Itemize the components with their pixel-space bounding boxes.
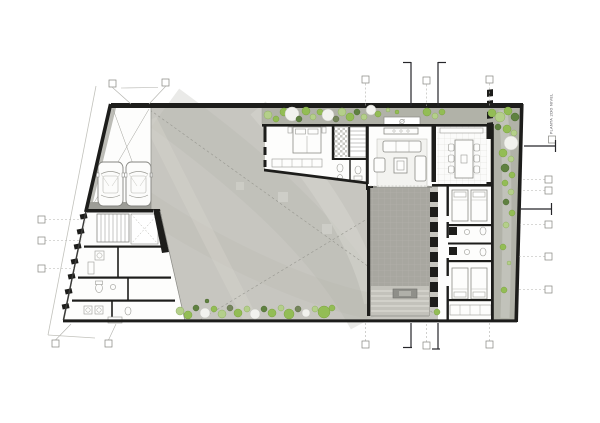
tree-icon bbox=[211, 306, 217, 312]
tree-icon bbox=[386, 108, 390, 112]
tree-icon bbox=[250, 309, 260, 319]
stair-icon bbox=[97, 214, 129, 242]
grid-marker bbox=[362, 341, 369, 348]
bed-icon bbox=[471, 268, 487, 299]
tree-icon bbox=[193, 305, 199, 311]
tree-icon bbox=[354, 109, 360, 115]
tree-icon bbox=[284, 309, 294, 319]
tree-icon bbox=[227, 305, 233, 311]
tree-icon bbox=[273, 116, 279, 122]
tree-icon bbox=[312, 306, 318, 312]
tree-icon bbox=[278, 305, 284, 311]
tree-icon bbox=[295, 306, 301, 312]
grid-marker bbox=[38, 265, 45, 272]
stair-icon bbox=[350, 127, 366, 157]
bathroom-floor bbox=[334, 127, 348, 157]
tree-icon bbox=[200, 308, 210, 318]
garage bbox=[86, 107, 153, 210]
grid-marker bbox=[423, 342, 430, 349]
grid-marker bbox=[52, 340, 59, 347]
tree-icon bbox=[434, 309, 440, 315]
tree-icon bbox=[329, 305, 335, 311]
grid-marker bbox=[362, 76, 369, 83]
tree-icon bbox=[310, 114, 316, 120]
grid-marker bbox=[423, 77, 430, 84]
car-icon bbox=[125, 162, 153, 206]
tree-icon bbox=[346, 113, 354, 121]
sofa-icon bbox=[415, 156, 426, 181]
tree-icon bbox=[264, 111, 272, 119]
tree-icon bbox=[508, 189, 514, 195]
sofa-icon bbox=[383, 141, 421, 152]
tree-icon bbox=[495, 112, 505, 122]
grid-marker bbox=[38, 216, 45, 223]
tree-icon bbox=[423, 108, 431, 116]
tree-icon bbox=[503, 199, 509, 205]
tree-icon bbox=[499, 149, 507, 157]
tree-icon bbox=[507, 261, 511, 265]
tree-icon bbox=[503, 222, 509, 228]
tree-icon bbox=[504, 136, 518, 150]
armchair-icon bbox=[374, 158, 385, 172]
tree-icon bbox=[502, 180, 508, 186]
plan-side-label: PLANTA 2DO NIVEL bbox=[549, 93, 554, 134]
closet bbox=[131, 214, 158, 244]
grid-marker bbox=[545, 286, 552, 293]
deck-steps bbox=[371, 286, 429, 316]
marker-leader-line bbox=[113, 88, 132, 105]
bed-icon bbox=[471, 190, 487, 221]
marker-leader-line bbox=[149, 87, 166, 105]
tree-icon bbox=[395, 110, 399, 114]
tree-icon bbox=[261, 306, 267, 312]
tree-icon bbox=[511, 113, 519, 121]
tree-icon bbox=[432, 113, 438, 119]
tree-icon bbox=[184, 311, 192, 319]
marker-leader-line bbox=[56, 324, 72, 340]
grid-marker bbox=[486, 341, 493, 348]
car-icon bbox=[97, 162, 125, 206]
tree-icon bbox=[205, 299, 209, 303]
tree-icon bbox=[500, 244, 506, 250]
tree-icon bbox=[361, 114, 367, 120]
tree-icon bbox=[439, 109, 445, 115]
tree-icon bbox=[302, 309, 310, 317]
tree-icon bbox=[495, 124, 501, 130]
grid-marker bbox=[38, 237, 45, 244]
tree-icon bbox=[509, 210, 515, 216]
tree-icon bbox=[244, 306, 250, 312]
grid-marker bbox=[545, 187, 552, 194]
tree-icon bbox=[501, 164, 509, 172]
tree-icon bbox=[268, 309, 276, 317]
grid-marker bbox=[486, 76, 493, 83]
tree-icon bbox=[176, 307, 184, 315]
tree-icon bbox=[318, 306, 330, 318]
floor-plan-drawing: PLANTA 2DO NIVEL bbox=[0, 0, 600, 423]
tree-icon bbox=[501, 287, 507, 293]
tree-icon bbox=[302, 107, 310, 115]
tree-icon bbox=[504, 107, 512, 115]
tree-icon bbox=[218, 310, 226, 318]
console-table bbox=[384, 128, 418, 134]
grid-marker bbox=[105, 340, 112, 347]
tree-icon bbox=[375, 111, 381, 117]
grid-marker bbox=[545, 253, 552, 260]
closet-strip bbox=[450, 305, 491, 315]
marker-leader-line bbox=[109, 324, 117, 340]
tree-icon bbox=[509, 172, 515, 178]
grid-marker bbox=[545, 221, 552, 228]
grid-marker bbox=[162, 79, 169, 86]
tree-icon bbox=[503, 125, 511, 133]
grid-marker bbox=[545, 176, 552, 183]
tree-icon bbox=[366, 105, 376, 115]
floor-plan-canvas: PLANTA 2DO NIVEL bbox=[0, 0, 600, 423]
tree-icon bbox=[333, 116, 339, 122]
tree-icon bbox=[234, 309, 242, 317]
tree-icon bbox=[508, 156, 514, 162]
grid-marker bbox=[549, 136, 556, 143]
grid-marker bbox=[109, 80, 116, 87]
tree-icon bbox=[322, 109, 334, 121]
tree-icon bbox=[296, 116, 302, 122]
tree-icon bbox=[511, 130, 517, 136]
deck-patio bbox=[366, 180, 438, 316]
tree-icon bbox=[488, 109, 496, 117]
bed-icon bbox=[452, 190, 468, 221]
bed-icon bbox=[452, 268, 468, 299]
tree-icon bbox=[338, 108, 346, 116]
wardrobe bbox=[272, 159, 322, 167]
